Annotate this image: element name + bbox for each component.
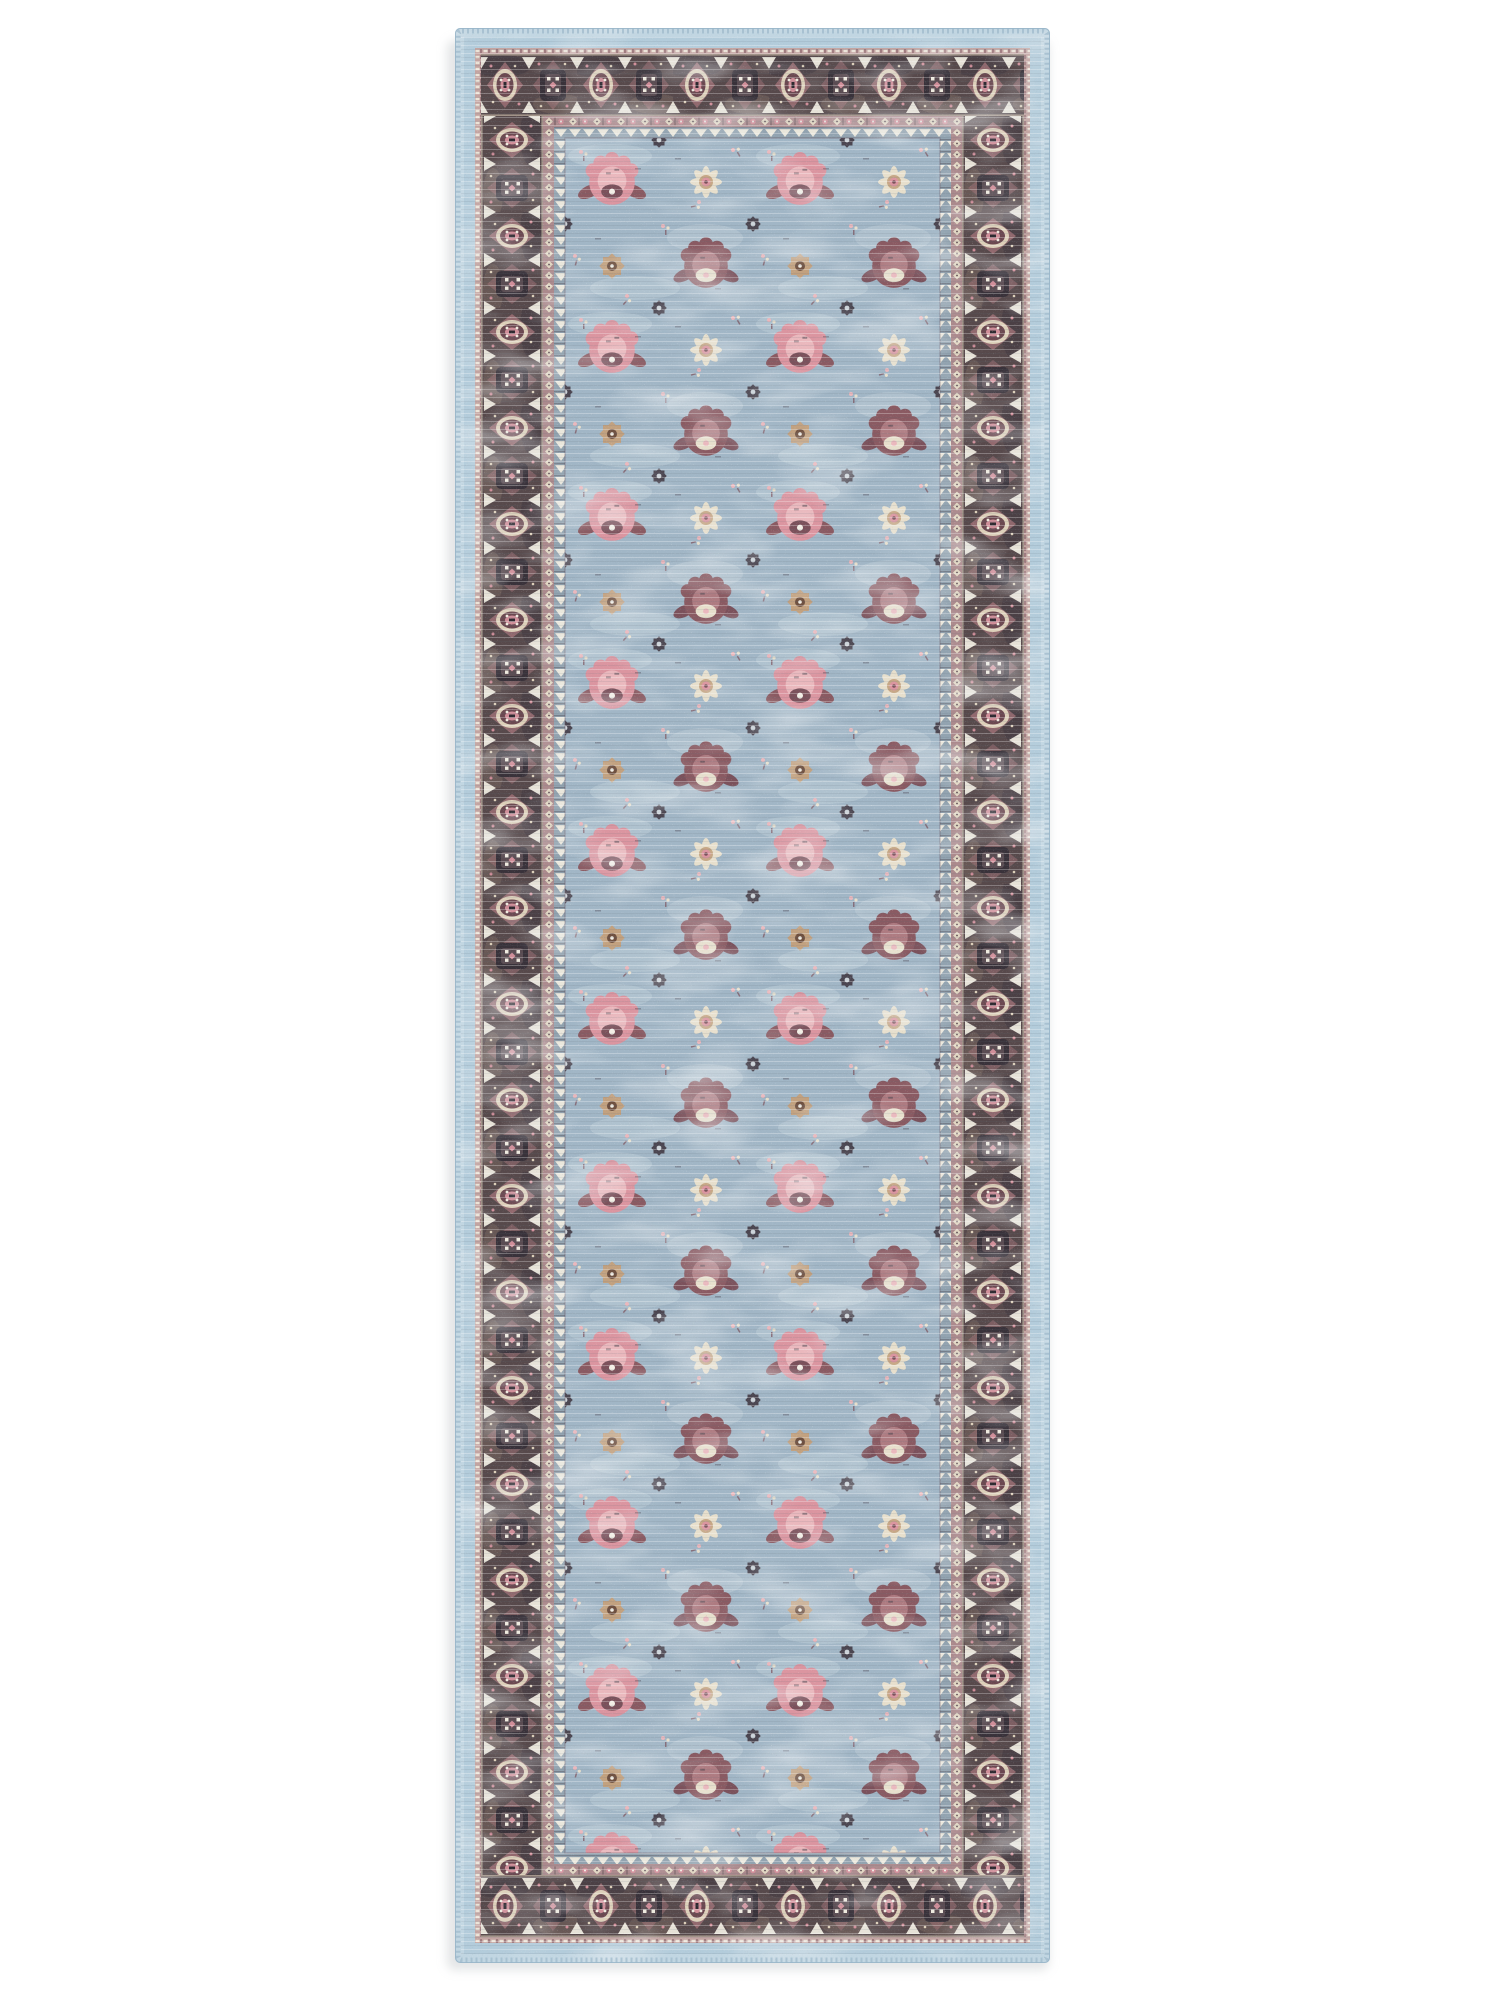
photo-canvas (0, 0, 1500, 2000)
light-grain-texture (455, 28, 1050, 1963)
rug-runner (455, 28, 1050, 1963)
rug-product-photo (0, 0, 1500, 2000)
rug-surface (455, 28, 1050, 1963)
